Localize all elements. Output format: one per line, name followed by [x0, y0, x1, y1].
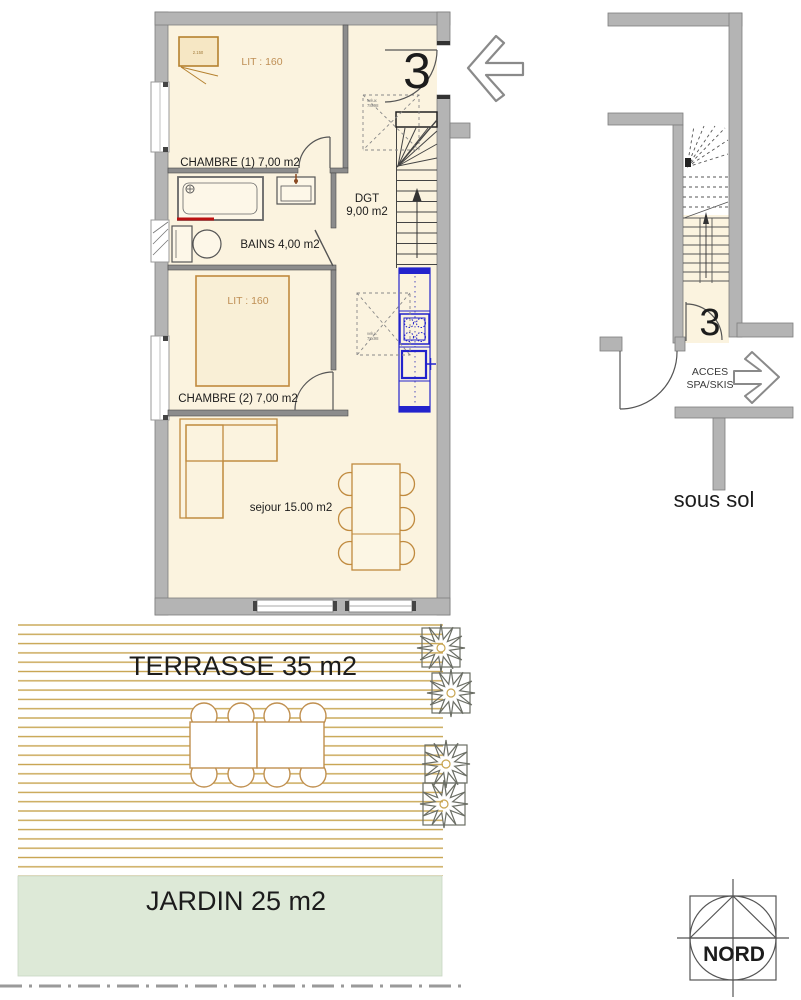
dgt-area-label: 9,00 m2	[346, 206, 388, 218]
closet-label: 2.150	[193, 50, 204, 55]
main-floor-plan: 2.150 LIT : 160 CHAMBRE (1) 7,00 m2 BAIN…	[151, 12, 470, 615]
sous-sol-label: sous sol	[674, 487, 755, 512]
window-bains	[151, 220, 169, 262]
unit-number-main: 3	[403, 43, 431, 99]
garden: JARDIN 25 m2	[18, 876, 442, 976]
bed-label-chambre1: LIT : 160	[241, 56, 282, 68]
bathtub	[178, 177, 263, 220]
nord-label: NORD	[703, 943, 765, 966]
room-label-sejour: sejour 15.00 m2	[250, 502, 332, 514]
bed-label-chambre2: LIT : 160	[227, 295, 268, 307]
jardin-label: JARDIN 25 m2	[146, 886, 326, 916]
acces-arrow-icon	[734, 352, 779, 403]
dining-table	[339, 464, 415, 570]
room-label-chambre2: CHAMBRE (2) 7,00 m2	[178, 393, 298, 405]
door-arc-basement-access	[620, 351, 677, 409]
basement-plan: 3 ACCES SPA/SKIS sous sol	[600, 13, 793, 512]
room-label-bains: BAINS 4,00 m2	[240, 239, 319, 251]
acces-label-line2: SPA/SKIS	[686, 379, 733, 391]
velux2-label-line2: 78x98	[367, 336, 379, 341]
sliding-windows	[253, 600, 416, 612]
bed-chambre2	[196, 276, 289, 386]
terrace: TERRASSE 35 m2	[18, 624, 475, 876]
floor-plan-page: 2.150 LIT : 160 CHAMBRE (1) 7,00 m2 BAIN…	[0, 0, 801, 1000]
washbasin	[277, 174, 315, 204]
entry-jamb-top	[437, 41, 450, 45]
room-label-chambre1: CHAMBRE (1) 7,00 m2	[180, 157, 300, 169]
velux1-label-line2: 78x98	[367, 103, 379, 108]
window-chambre1	[151, 82, 169, 152]
acces-label-line1: ACCES	[692, 366, 728, 378]
unit-number-basement: 3	[699, 302, 720, 344]
north-compass: NORD	[677, 879, 789, 997]
terrasse-label: TERRASSE 35 m2	[129, 651, 357, 681]
entry-arrow-icon	[468, 36, 523, 101]
dgt-label: DGT	[355, 193, 379, 205]
entry-jamb-bottom	[437, 95, 450, 99]
window-chambre2	[151, 336, 169, 420]
